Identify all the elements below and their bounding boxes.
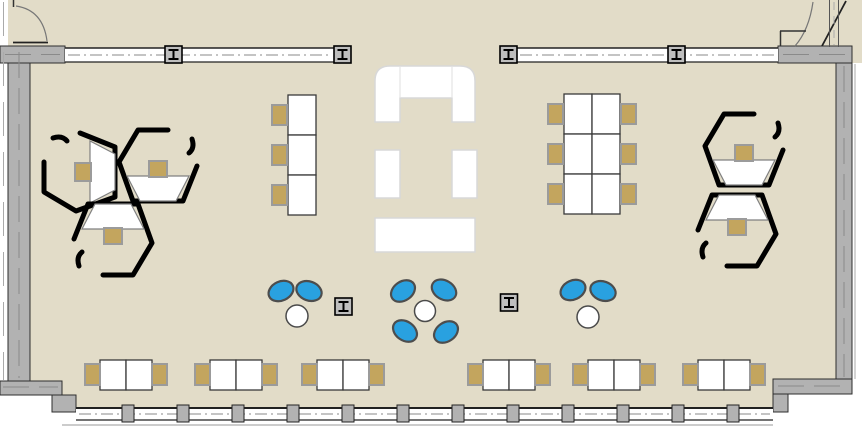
desk[interactable] bbox=[724, 360, 750, 390]
bottom-left-wall-step bbox=[52, 395, 76, 412]
desk[interactable] bbox=[614, 360, 640, 390]
desk[interactable] bbox=[564, 174, 592, 214]
bench-ottoman[interactable] bbox=[375, 218, 475, 252]
chair[interactable] bbox=[728, 219, 746, 235]
desk-run-left bbox=[272, 95, 316, 215]
desk-pair bbox=[85, 360, 167, 390]
steel-column-icon bbox=[335, 298, 352, 315]
desk[interactable] bbox=[588, 360, 614, 390]
chair[interactable] bbox=[272, 105, 287, 125]
window-mullion-post bbox=[342, 405, 354, 422]
desk[interactable] bbox=[343, 360, 369, 390]
steel-column-icon bbox=[334, 46, 351, 63]
steel-column-icon bbox=[165, 46, 182, 63]
round-table[interactable] bbox=[577, 306, 599, 328]
window-mullion-post bbox=[507, 405, 519, 422]
steel-column-icon bbox=[500, 46, 517, 63]
desk[interactable] bbox=[509, 360, 535, 390]
desk[interactable] bbox=[317, 360, 343, 390]
desk[interactable] bbox=[592, 134, 620, 174]
chair[interactable] bbox=[369, 364, 384, 385]
chair[interactable] bbox=[104, 228, 122, 244]
floor-plan-page bbox=[0, 0, 862, 442]
window-mullion-post bbox=[562, 405, 574, 422]
bench-ottoman[interactable] bbox=[452, 150, 477, 198]
chair[interactable] bbox=[152, 364, 167, 385]
chair[interactable] bbox=[272, 145, 287, 165]
outside-area bbox=[788, 394, 862, 442]
window-mullion-post bbox=[452, 405, 464, 422]
chair[interactable] bbox=[468, 364, 483, 385]
bottom-right-wall-step bbox=[773, 394, 788, 412]
desk[interactable] bbox=[483, 360, 509, 390]
desk[interactable] bbox=[288, 95, 316, 135]
desk[interactable] bbox=[288, 175, 316, 215]
steel-column-icon bbox=[668, 46, 685, 63]
chair[interactable] bbox=[683, 364, 698, 385]
desk[interactable] bbox=[564, 134, 592, 174]
window-mullion-post bbox=[122, 405, 134, 422]
desk[interactable] bbox=[126, 360, 152, 390]
window-mullion-post bbox=[397, 405, 409, 422]
chair[interactable] bbox=[573, 364, 588, 385]
window-mullion-post bbox=[177, 405, 189, 422]
desk-pair bbox=[302, 360, 384, 390]
chair[interactable] bbox=[621, 144, 636, 164]
desk-run-right bbox=[548, 94, 636, 214]
chair[interactable] bbox=[302, 364, 317, 385]
chair[interactable] bbox=[621, 104, 636, 124]
chair[interactable] bbox=[548, 144, 563, 164]
desk-pair bbox=[573, 360, 655, 390]
window-mullion-post bbox=[287, 405, 299, 422]
desk[interactable] bbox=[288, 135, 316, 175]
desk-pair bbox=[468, 360, 550, 390]
window-mullion-post bbox=[617, 405, 629, 422]
floor-plan-canvas bbox=[0, 0, 862, 442]
chair[interactable] bbox=[750, 364, 765, 385]
window-mullion-post bbox=[232, 405, 244, 422]
chair[interactable] bbox=[640, 364, 655, 385]
chair[interactable] bbox=[735, 145, 753, 161]
round-table[interactable] bbox=[286, 305, 308, 327]
desk[interactable] bbox=[100, 360, 126, 390]
desk[interactable] bbox=[564, 94, 592, 134]
chair[interactable] bbox=[272, 185, 287, 205]
chair[interactable] bbox=[85, 364, 100, 385]
chair[interactable] bbox=[535, 364, 550, 385]
chair[interactable] bbox=[149, 161, 167, 177]
chair[interactable] bbox=[548, 104, 563, 124]
steel-column-icon bbox=[501, 294, 518, 311]
chair[interactable] bbox=[548, 184, 563, 204]
desk-pair bbox=[195, 360, 277, 390]
desk-pair bbox=[683, 360, 765, 390]
outside-area bbox=[0, 395, 52, 442]
round-table[interactable] bbox=[415, 301, 436, 322]
desk[interactable] bbox=[210, 360, 236, 390]
bench-ottoman[interactable] bbox=[375, 150, 400, 198]
desk[interactable] bbox=[236, 360, 262, 390]
chair[interactable] bbox=[262, 364, 277, 385]
chair[interactable] bbox=[195, 364, 210, 385]
desk[interactable] bbox=[698, 360, 724, 390]
window-mullion-post bbox=[727, 405, 739, 422]
bottom-left-wall-band bbox=[0, 381, 62, 395]
chair[interactable] bbox=[621, 184, 636, 204]
desk[interactable] bbox=[592, 94, 620, 134]
chair[interactable] bbox=[75, 163, 91, 181]
desk[interactable] bbox=[592, 174, 620, 214]
window-mullion-post bbox=[672, 405, 684, 422]
